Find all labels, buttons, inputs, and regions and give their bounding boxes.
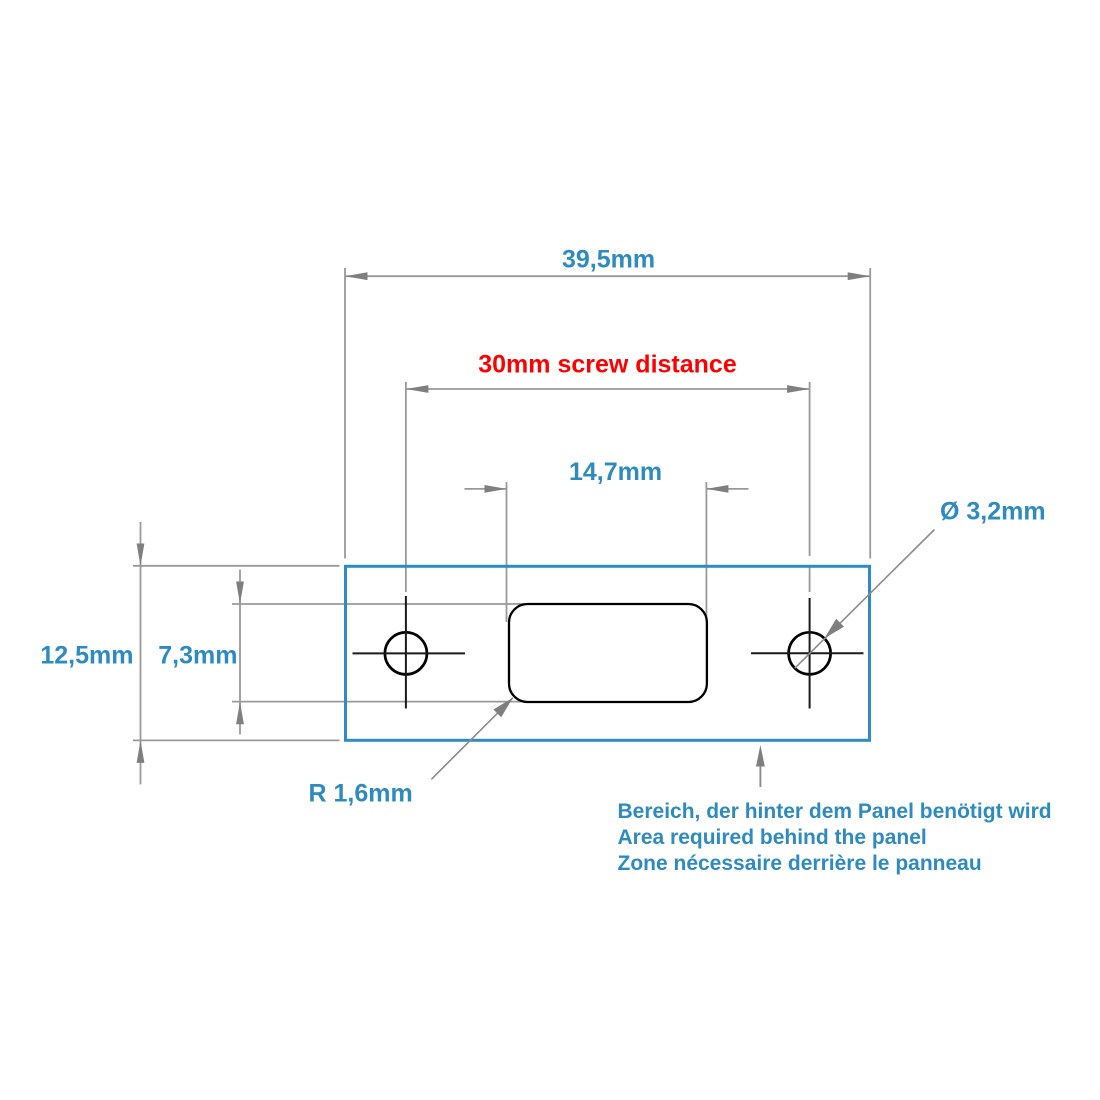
svg-text:Ø 3,2mm: Ø 3,2mm (940, 498, 1046, 526)
svg-text:7,3mm: 7,3mm (158, 642, 237, 670)
svg-text:R 1,6mm: R 1,6mm (309, 780, 413, 808)
svg-text:30mm screw distance: 30mm screw distance (478, 351, 737, 379)
svg-text:Bereich, der hinter dem Panel: Bereich, der hinter dem Panel benötigt w… (618, 800, 1052, 823)
svg-text:39,5mm: 39,5mm (562, 246, 655, 274)
svg-text:12,5mm: 12,5mm (40, 642, 133, 670)
svg-text:Area required behind the panel: Area required behind the panel (618, 826, 927, 849)
svg-text:Zone nécessaire derrière le pa: Zone nécessaire derrière le panneau (618, 852, 982, 875)
svg-text:14,7mm: 14,7mm (569, 458, 662, 486)
